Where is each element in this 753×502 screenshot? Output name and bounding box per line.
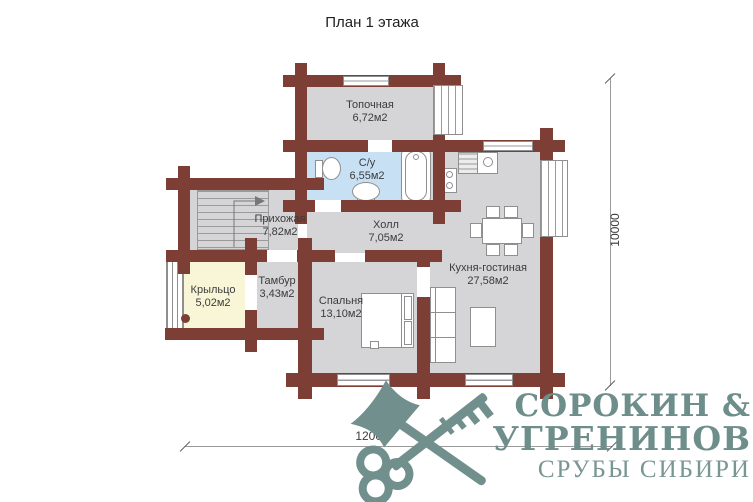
- bed-blanket-line: [401, 294, 402, 347]
- floor-plan-page: План 1 этажа: [0, 0, 753, 502]
- wall-segment: [417, 250, 430, 267]
- bay-window: [540, 160, 568, 237]
- bay-window: [433, 85, 463, 135]
- window: [483, 141, 533, 151]
- wall-segment: [165, 328, 324, 340]
- logo-line-1: СОРОКИН &: [492, 390, 751, 422]
- dining-chair: [486, 244, 500, 256]
- dimension-label-vertical: 10000: [608, 205, 622, 255]
- kitchen-sink-bowl: [483, 157, 493, 167]
- toilet-bowl: [322, 157, 341, 180]
- logo-line-3: СРУБЫ СИБИРИ: [492, 456, 751, 483]
- coffee-table: [470, 307, 496, 347]
- stove-burner: [446, 171, 453, 178]
- wall-segment: [283, 200, 315, 212]
- dining-chair: [486, 206, 500, 218]
- dining-table: [482, 218, 522, 244]
- dining-chair: [504, 244, 518, 256]
- room-label-hall: Холл7,05м2: [368, 219, 403, 245]
- wall-segment: [417, 297, 430, 387]
- room-label-bedroom: Спальня13,10м2: [319, 295, 363, 321]
- dining-chair: [522, 223, 534, 238]
- bathtub-drain: [413, 154, 419, 160]
- dining-chair: [470, 223, 482, 238]
- stove-burner: [446, 182, 453, 189]
- room-label-kitchen-living: Кухня-гостиная27,58м2: [449, 262, 527, 288]
- wall-segment: [341, 200, 461, 212]
- nightstand: [370, 341, 379, 349]
- page-title: План 1 этажа: [325, 14, 419, 31]
- bathroom-sink: [352, 182, 380, 201]
- logo-line-2: УГРЕНИНОВ: [492, 422, 751, 456]
- dining-chair: [504, 206, 518, 218]
- room-label-hallway: Прихожая7,82м2: [255, 213, 306, 239]
- floor-plan: Топочная6,72м2 С/у6,55м2 Прихожая7,82м2 …: [165, 60, 568, 400]
- logo-text: СОРОКИН & УГРЕНИНОВ СРУБЫ СИБИРИ: [492, 390, 751, 483]
- bed-pillow: [404, 321, 412, 345]
- kitchen-drainboard: [458, 152, 478, 174]
- wall-segment: [245, 238, 257, 275]
- wall-segment: [365, 250, 442, 262]
- room-label-porch: Крыльцо5,02м2: [191, 284, 236, 310]
- room-label-bathroom: С/у6,55м2: [349, 157, 384, 183]
- room-label-boiler: Топочная6,72м2: [346, 99, 394, 125]
- porch-post: [181, 314, 190, 323]
- room-label-vestibule: Тамбур3,43м2: [258, 275, 295, 301]
- bed-pillow: [404, 296, 412, 320]
- sofa-backrest-line: [435, 288, 436, 362]
- window: [343, 76, 389, 86]
- wall-segment: [283, 140, 368, 152]
- sofa: [430, 287, 456, 363]
